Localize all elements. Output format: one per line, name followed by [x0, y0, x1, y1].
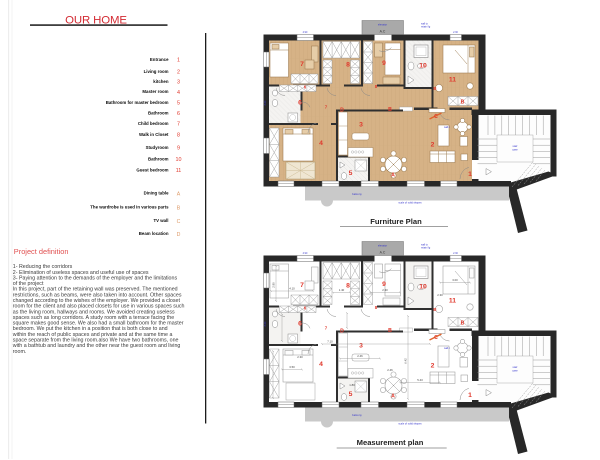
svg-text:A: A — [177, 191, 181, 197]
svg-text:B: B — [433, 86, 436, 91]
svg-text:Furniture Plan: Furniture Plan — [370, 217, 422, 226]
svg-text:5.43: 5.43 — [417, 378, 423, 382]
svg-text:9: 9 — [382, 281, 386, 288]
svg-text:Entrance: Entrance — [150, 57, 169, 62]
svg-text:case: case — [512, 369, 518, 372]
svg-text:11: 11 — [449, 77, 456, 84]
svg-text:8: 8 — [346, 283, 350, 290]
svg-text:retain fig: retain fig — [421, 25, 431, 28]
svg-text:Guest bedroom: Guest bedroom — [136, 168, 168, 173]
svg-text:C: C — [177, 219, 181, 225]
svg-text:3.50: 3.50 — [289, 365, 295, 369]
svg-text:10: 10 — [419, 63, 427, 70]
svg-text:case: case — [512, 148, 518, 151]
svg-text:2.90: 2.90 — [272, 282, 276, 288]
svg-text:2.30: 2.30 — [382, 288, 388, 292]
svg-text:3.20: 3.20 — [264, 321, 267, 326]
svg-text:11: 11 — [176, 168, 182, 174]
svg-text:2.30: 2.30 — [297, 355, 303, 359]
svg-text:7: 7 — [300, 282, 304, 289]
svg-text:with a bathtub and laundry and: with a bathtub and laundry and the other… — [13, 343, 181, 349]
svg-text:4: 4 — [319, 361, 323, 368]
svg-text:1.80: 1.80 — [349, 383, 355, 387]
svg-text:balcony: balcony — [352, 192, 362, 196]
svg-text:5: 5 — [177, 101, 180, 107]
svg-text:6.42: 6.42 — [404, 358, 408, 364]
svg-text:4.10: 4.10 — [289, 287, 295, 291]
svg-text:D: D — [340, 329, 344, 335]
svg-text:Master room: Master room — [142, 89, 168, 94]
svg-text:9: 9 — [177, 145, 180, 151]
svg-text:D: D — [177, 232, 181, 238]
svg-text:3: 3 — [177, 80, 180, 86]
svg-text:1: 1 — [177, 57, 180, 63]
svg-text:Beam location: Beam location — [139, 231, 169, 236]
svg-text:Bathroom for master bedroom: Bathroom for master bedroom — [106, 100, 169, 105]
svg-text:kitchen: kitchen — [153, 79, 169, 84]
svg-text:Studyroom: Studyroom — [146, 145, 169, 150]
svg-text:2: 2 — [431, 363, 435, 370]
svg-text:1.40: 1.40 — [339, 288, 345, 292]
svg-text:2: 2 — [431, 142, 435, 149]
svg-text:A: A — [391, 394, 395, 400]
svg-text:2.30: 2.30 — [453, 252, 458, 255]
svg-text:1: 1 — [468, 392, 472, 399]
svg-text:B: B — [461, 321, 465, 327]
svg-text:stair: stair — [513, 365, 518, 369]
svg-text:D: D — [340, 108, 344, 114]
svg-text:A.C: A.C — [380, 251, 386, 255]
svg-text:11: 11 — [449, 298, 456, 305]
svg-text:3: 3 — [359, 122, 363, 129]
svg-text:retain fig: retain fig — [421, 246, 431, 249]
svg-text:4: 4 — [177, 90, 180, 96]
svg-text:scale of solid shapes: scale of solid shapes — [398, 423, 422, 426]
svg-text:Measurement plan: Measurement plan — [357, 438, 424, 447]
svg-text:B: B — [433, 307, 436, 312]
svg-text:Project definition: Project definition — [14, 247, 69, 256]
svg-text:Living room: Living room — [144, 69, 169, 74]
svg-text:balcony: balcony — [352, 413, 362, 417]
svg-text:B: B — [388, 328, 392, 334]
svg-text:1: 1 — [468, 171, 472, 178]
svg-text:6: 6 — [298, 100, 302, 107]
svg-text:4.90: 4.90 — [303, 252, 308, 255]
svg-text:Dining table: Dining table — [144, 191, 169, 196]
svg-text:wall c: wall c — [444, 126, 451, 129]
svg-text:4: 4 — [319, 140, 323, 147]
svg-text:8: 8 — [346, 62, 350, 69]
svg-text:5: 5 — [349, 391, 353, 398]
svg-text:4.90: 4.90 — [303, 31, 308, 34]
svg-text:7: 7 — [300, 61, 304, 68]
svg-text:scale of solid shapes: scale of solid shapes — [398, 202, 422, 205]
svg-text:10: 10 — [419, 284, 427, 291]
svg-text:2.30: 2.30 — [437, 293, 443, 297]
svg-text:3.00: 3.00 — [452, 278, 458, 282]
svg-text:7.10: 7.10 — [327, 340, 333, 344]
svg-text:B: B — [388, 107, 392, 113]
svg-text:A: A — [391, 173, 395, 179]
svg-text:2.46: 2.46 — [387, 368, 393, 372]
svg-text:wall c: wall c — [444, 347, 451, 350]
svg-text:elevator: elevator — [378, 23, 387, 27]
svg-text:2.46: 2.46 — [357, 354, 363, 358]
svg-text:elevator: elevator — [378, 244, 387, 248]
svg-text:3: 3 — [359, 343, 363, 350]
svg-text:8: 8 — [177, 133, 180, 139]
svg-text:TV wall: TV wall — [154, 218, 169, 223]
svg-text:Bathroom: Bathroom — [148, 110, 169, 115]
svg-text:9: 9 — [382, 60, 386, 67]
svg-text:7: 7 — [177, 121, 180, 127]
svg-text:B: B — [177, 205, 181, 211]
svg-text:3.20: 3.20 — [264, 100, 267, 105]
svg-text:The wardrobe is used in variou: The wardrobe is used in various parts — [90, 205, 169, 210]
svg-text:Bathroom: Bathroom — [148, 156, 169, 161]
svg-text:2.30: 2.30 — [453, 31, 458, 34]
svg-text:6: 6 — [177, 111, 180, 117]
svg-text:10: 10 — [176, 157, 182, 163]
svg-text:C: C — [434, 335, 438, 341]
svg-text:Walk in Closet: Walk in Closet — [139, 132, 169, 137]
svg-text:B: B — [461, 100, 465, 106]
svg-text:Child bedroom: Child bedroom — [138, 121, 169, 126]
svg-text:5: 5 — [349, 170, 353, 177]
svg-text:C: C — [434, 114, 438, 120]
svg-text:2: 2 — [177, 69, 180, 75]
svg-text:stair: stair — [513, 144, 518, 148]
svg-text:room.: room. — [13, 349, 27, 355]
svg-text:A.C: A.C — [380, 30, 386, 34]
svg-text:6: 6 — [298, 321, 302, 328]
